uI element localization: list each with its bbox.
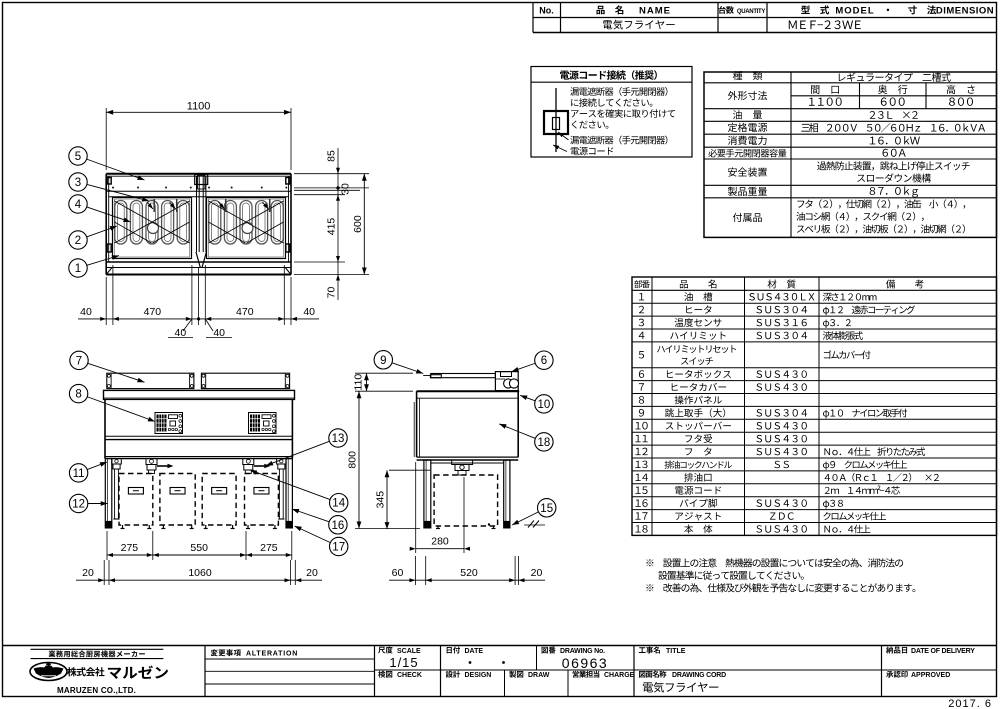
svg-text:MARUZEN CO.,LTD.: MARUZEN CO.,LTD. bbox=[57, 686, 136, 695]
svg-text:60: 60 bbox=[392, 567, 404, 579]
svg-text:06963: 06963 bbox=[562, 655, 608, 671]
svg-text:85: 85 bbox=[326, 150, 338, 162]
svg-text:9: 9 bbox=[380, 355, 386, 367]
svg-text:13: 13 bbox=[332, 433, 345, 445]
svg-text:10: 10 bbox=[538, 399, 551, 411]
svg-text:470: 470 bbox=[236, 306, 254, 318]
svg-text:11: 11 bbox=[73, 468, 85, 480]
svg-text:TITLE: TITLE bbox=[666, 648, 686, 655]
svg-text:7: 7 bbox=[76, 355, 82, 367]
svg-text:20: 20 bbox=[306, 567, 318, 579]
svg-text:4: 4 bbox=[75, 199, 82, 211]
svg-text:DATE: DATE bbox=[465, 648, 484, 655]
svg-text:40: 40 bbox=[303, 306, 315, 318]
svg-text:280: 280 bbox=[431, 536, 449, 548]
svg-text:2017. 6: 2017. 6 bbox=[948, 698, 992, 709]
svg-text:30: 30 bbox=[340, 183, 352, 195]
svg-text:1: 1 bbox=[75, 263, 81, 275]
svg-text:470: 470 bbox=[144, 306, 162, 318]
svg-text:275: 275 bbox=[260, 542, 278, 554]
svg-text:14: 14 bbox=[332, 498, 345, 510]
svg-text:20: 20 bbox=[531, 567, 543, 579]
svg-text:520: 520 bbox=[460, 567, 478, 579]
svg-text:1/15: 1/15 bbox=[389, 655, 418, 670]
svg-text:APPROVED: APPROVED bbox=[911, 672, 950, 679]
svg-text:16: 16 bbox=[332, 520, 345, 532]
svg-text:6: 6 bbox=[541, 355, 547, 367]
svg-text:CHECK: CHECK bbox=[397, 672, 422, 679]
svg-text:1100: 1100 bbox=[187, 101, 211, 113]
svg-text:15: 15 bbox=[540, 503, 553, 515]
svg-text:110: 110 bbox=[353, 374, 365, 391]
svg-text:NAME: NAME bbox=[639, 6, 671, 17]
svg-text:QUANTITY: QUANTITY bbox=[737, 9, 766, 15]
svg-text:800: 800 bbox=[347, 451, 359, 469]
svg-text:1060: 1060 bbox=[188, 567, 212, 579]
svg-text:18: 18 bbox=[538, 437, 551, 449]
svg-text:2: 2 bbox=[75, 235, 81, 247]
svg-text:17: 17 bbox=[332, 542, 345, 554]
svg-text:70: 70 bbox=[326, 287, 338, 299]
svg-text:3: 3 bbox=[75, 177, 81, 189]
svg-text:415: 415 bbox=[326, 218, 338, 236]
svg-text:40: 40 bbox=[80, 306, 92, 318]
svg-text:DRAWING CORD: DRAWING CORD bbox=[672, 672, 726, 679]
svg-text:550: 550 bbox=[190, 542, 208, 554]
svg-text:DRAW: DRAW bbox=[528, 672, 550, 679]
svg-text:345: 345 bbox=[375, 491, 387, 509]
svg-text:No.: No. bbox=[539, 6, 554, 16]
svg-text:8: 8 bbox=[75, 389, 81, 401]
svg-text:5: 5 bbox=[75, 151, 81, 163]
svg-text:600: 600 bbox=[352, 215, 364, 233]
svg-text:275: 275 bbox=[121, 542, 139, 554]
svg-text:DESIGN: DESIGN bbox=[465, 672, 492, 679]
svg-text:DRAWING No.: DRAWING No. bbox=[560, 648, 605, 655]
svg-text:SCALE: SCALE bbox=[397, 648, 421, 655]
svg-text:DATE OF DELIVERY: DATE OF DELIVERY bbox=[911, 648, 975, 655]
svg-text:CHARGE: CHARGE bbox=[604, 672, 635, 679]
svg-text:12: 12 bbox=[72, 499, 85, 511]
svg-text:MODEL: MODEL bbox=[835, 6, 874, 17]
svg-text:20: 20 bbox=[82, 567, 94, 579]
svg-text:DIMENSION: DIMENSION bbox=[936, 6, 994, 17]
svg-text:ALTERATION: ALTERATION bbox=[246, 651, 298, 658]
